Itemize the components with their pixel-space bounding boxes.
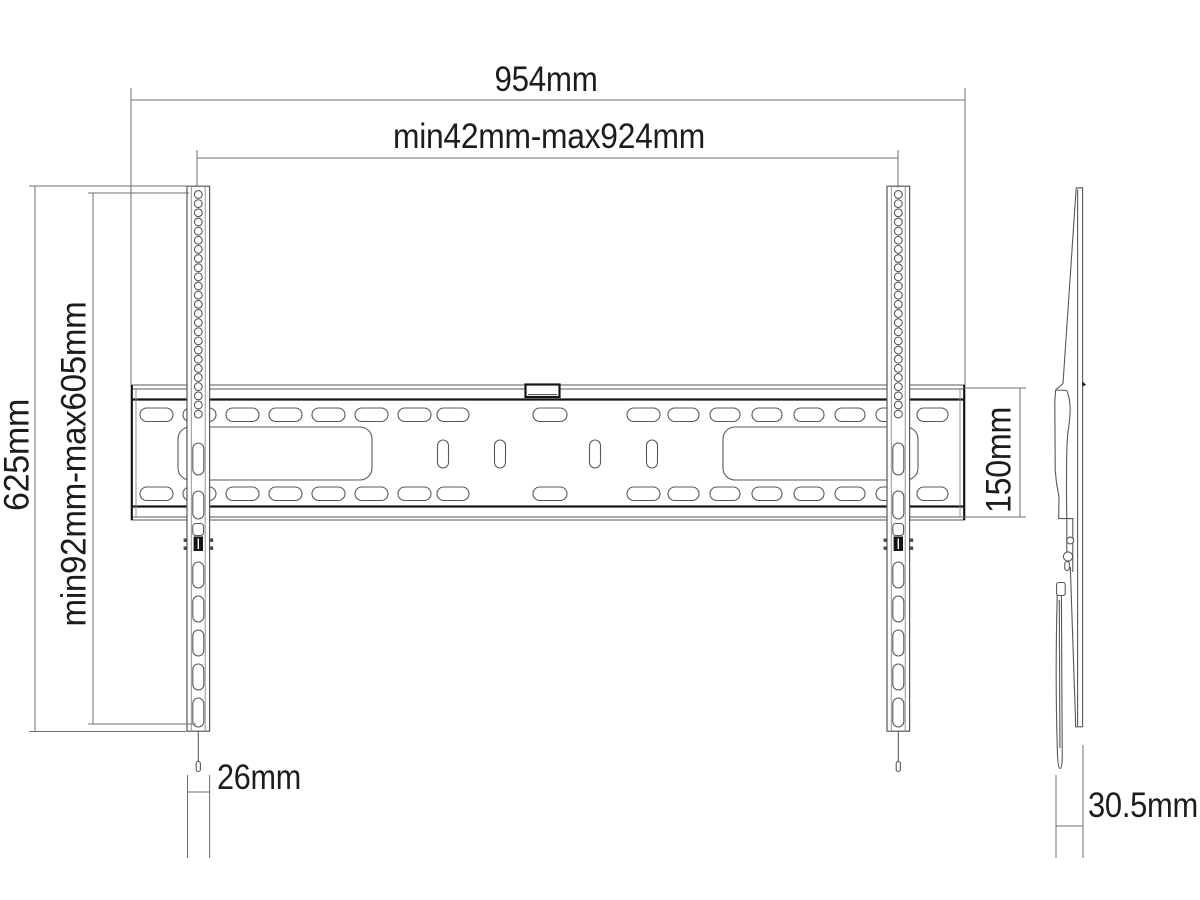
wall-rail-front	[131, 385, 965, 521]
rail-slot	[917, 487, 948, 501]
rail-slot	[437, 487, 469, 501]
clip-body	[526, 385, 560, 398]
rail-slot	[269, 487, 302, 501]
cord-tip	[196, 762, 200, 772]
rail-slot	[794, 408, 824, 422]
rail-slot	[752, 408, 782, 422]
rail-slot	[710, 408, 740, 422]
vesa-hole	[194, 264, 202, 272]
vesa-hole	[194, 319, 202, 327]
dim-label-overall-width: 954mm	[495, 60, 598, 99]
rail-face-lines	[131, 400, 965, 507]
rail-slot	[710, 487, 740, 501]
bracket-slot	[193, 562, 204, 588]
rail-mid-slot	[495, 440, 506, 468]
vesa-hole	[194, 346, 202, 354]
bracket-slot	[193, 491, 204, 519]
latch-pin	[184, 547, 188, 550]
latch-pin	[210, 539, 214, 542]
vesa-hole	[194, 410, 202, 418]
vesa-hole	[194, 300, 202, 308]
rail-slot	[140, 408, 173, 422]
vesa-hole	[194, 246, 202, 254]
vesa-hole	[194, 310, 202, 318]
vesa-hole	[194, 383, 202, 391]
latch-pin	[210, 547, 214, 550]
drawing-canvas: 954mm min42mm-max924mm 625mm min92mm-max…	[0, 0, 1200, 900]
rail-slot-rows	[140, 408, 948, 501]
rail-slot	[627, 487, 660, 501]
vesa-hole	[194, 255, 202, 263]
right-vesa-bracket	[884, 186, 914, 771]
rail-slot	[269, 408, 302, 422]
rail-slot	[668, 487, 699, 501]
side-hole	[1067, 537, 1074, 544]
rail-slot	[398, 487, 431, 501]
dim-lines	[188, 775, 210, 858]
rail-slot	[355, 408, 388, 422]
bracket-slot	[193, 698, 204, 727]
dim-label-bracket-width: 26mm	[217, 758, 301, 797]
bracket-slot	[193, 443, 204, 475]
vesa-hole	[194, 374, 202, 382]
vesa-hole	[194, 209, 202, 217]
bracket-hole-column	[194, 191, 202, 418]
rail-slot	[437, 408, 469, 422]
dim-hole-width-range: min42mm-max924mm	[197, 117, 898, 188]
dim-hole-height-range: min92mm-max605mm	[55, 193, 197, 724]
vesa-hole	[194, 273, 202, 281]
dim-overall-height: 625mm	[0, 186, 190, 732]
bracket-slot	[193, 596, 204, 622]
pull-cord	[196, 731, 200, 771]
dim-label-overall-height: 625mm	[0, 399, 37, 511]
side-knob	[1063, 552, 1072, 561]
center-clip	[526, 385, 560, 398]
left-vesa-bracket	[184, 186, 214, 771]
rail-slot	[355, 487, 388, 501]
rail-slot	[668, 408, 699, 422]
dim-rail-height: 150mm	[963, 388, 1026, 517]
dim-depth: 30.5mm	[1056, 745, 1198, 858]
dim-label-hole-width-range: min42mm-max924mm	[393, 117, 705, 156]
dim-label-depth: 30.5mm	[1088, 786, 1198, 825]
vesa-hole	[194, 355, 202, 363]
vesa-hole	[194, 401, 202, 409]
vesa-hole	[194, 200, 202, 208]
rail-slot	[398, 408, 431, 422]
rail-mid-slot	[590, 440, 601, 468]
rail-slot	[312, 408, 345, 422]
bracket-slot	[193, 630, 204, 656]
side-knob-stem	[1065, 562, 1070, 571]
vesa-hole	[194, 236, 202, 244]
rail-slot	[533, 408, 567, 422]
rail-mid-slot	[438, 440, 449, 468]
vesa-hole	[194, 282, 202, 290]
rail-mid-slot	[647, 440, 658, 468]
vesa-hole	[194, 392, 202, 400]
vesa-hole	[194, 364, 202, 372]
front-view	[131, 186, 965, 771]
dim-label-rail-height: 150mm	[980, 407, 1019, 513]
dim-bracket-width: 26mm	[188, 758, 302, 858]
side-lever-top	[1057, 583, 1066, 596]
vesa-hole	[194, 337, 202, 345]
vesa-hole	[194, 328, 202, 336]
vesa-hole	[194, 291, 202, 299]
rail-slot	[752, 487, 782, 501]
rail-slot	[917, 408, 948, 422]
dimensions: 954mm min42mm-max924mm 625mm min92mm-max…	[0, 60, 1198, 858]
latch-pin	[184, 539, 188, 542]
vesa-hole	[194, 227, 202, 235]
side-lever-inner-line	[1059, 600, 1060, 748]
bracket-slot	[193, 664, 204, 690]
latch-top	[193, 524, 204, 536]
rail-slot	[794, 487, 824, 501]
dim-overall-width: 954mm	[131, 60, 965, 385]
rail-slot	[226, 408, 259, 422]
vesa-hole	[194, 218, 202, 226]
side-view	[1055, 188, 1086, 769]
dim-lines	[29, 186, 190, 732]
dim-label-hole-height-range: min92mm-max605mm	[55, 302, 94, 627]
rail-slot	[140, 487, 173, 501]
rail-slot	[835, 408, 865, 422]
rail-slot	[835, 487, 865, 501]
dim-lines	[88, 193, 196, 724]
vesa-hole	[194, 191, 202, 199]
technical-drawing-svg: 954mm min42mm-max924mm 625mm min92mm-max…	[0, 0, 1200, 900]
rail-slot	[533, 487, 567, 501]
rail-slot	[627, 408, 660, 422]
rail-slot	[312, 487, 345, 501]
side-tick-mark	[1083, 382, 1086, 387]
rail-slot	[226, 487, 259, 501]
